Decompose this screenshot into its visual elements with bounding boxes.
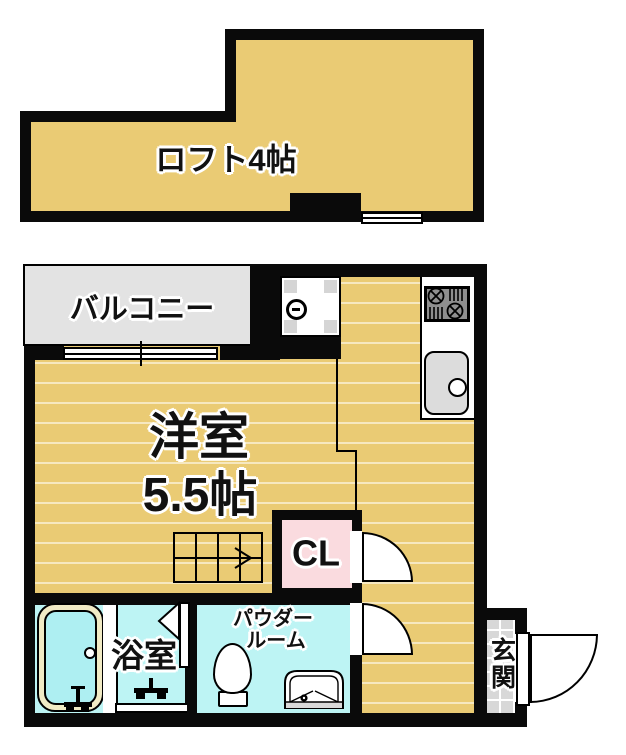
bath-label: 浴室 (111, 638, 177, 674)
mixer-foot-right (157, 693, 166, 699)
front-door-swing (530, 634, 598, 703)
loft-label: ロフト4帖 (155, 143, 296, 176)
kitchen-sink (424, 351, 469, 415)
faucet-foot-left (66, 707, 74, 712)
room-boundary-line-v1 (336, 359, 338, 452)
bath-door-swing-triangle (157, 601, 181, 641)
pan-corner-bl (284, 320, 297, 333)
balcony-label: バルコニー (70, 294, 214, 325)
main-room-label-line2: 5.5帖 (143, 470, 258, 522)
wall-bottom (24, 713, 527, 727)
stairs-icon (173, 532, 263, 583)
closet-label: CL (292, 535, 340, 574)
sink-faucet-icon (448, 378, 467, 397)
room-boundary-line-h (336, 450, 357, 452)
loft-hatch-opening (290, 193, 361, 222)
pan-drain-icon (286, 299, 307, 320)
pan-corner-tr (324, 280, 337, 293)
wall-left (24, 346, 35, 727)
faucet-foot-right (81, 707, 89, 712)
main-room-label-line1: 洋室 (149, 410, 249, 464)
washbasin (283, 668, 345, 710)
mixer-foot-left (136, 693, 145, 699)
room-boundary-line-v2 (355, 450, 357, 512)
loft-window (361, 212, 423, 224)
wall-under-washer (262, 337, 341, 359)
pan-drain-slot (292, 308, 300, 311)
shower-mixer-icon (134, 678, 168, 702)
bathtub-knob (84, 647, 96, 659)
wall-entrance-right-upper (515, 608, 527, 634)
powder-label-line1: パウダー (233, 609, 313, 631)
loft-floor-right (236, 40, 473, 211)
powder-label-line2: ルーム (246, 631, 305, 653)
front-door-leaf (516, 632, 530, 706)
balcony-window-center-tick (140, 341, 142, 366)
floor-plan: ロフト4帖 バルコニー (0, 0, 626, 755)
entrance-label: 玄関 (488, 637, 515, 691)
stove-icon (424, 286, 470, 322)
wall-below-balcony-right (220, 346, 262, 360)
loft-window-midline (363, 217, 421, 219)
closet-doorway (350, 531, 362, 583)
powder-doorway (350, 603, 362, 655)
pan-corner-tl (284, 280, 297, 293)
wall-right (474, 264, 487, 713)
bath-ledge (115, 703, 187, 713)
washing-machine-pan (280, 276, 341, 337)
bathtub-faucet-icon (62, 686, 96, 712)
pan-corner-br (324, 320, 337, 333)
faucet-crossbar (71, 686, 85, 689)
